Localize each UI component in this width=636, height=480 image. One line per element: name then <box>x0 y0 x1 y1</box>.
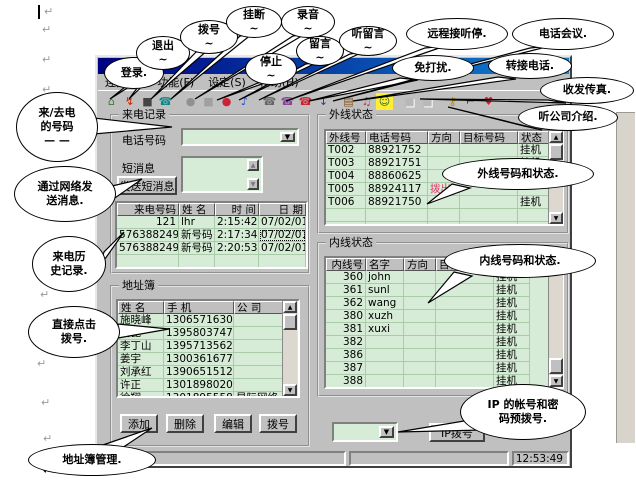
table-cell <box>404 271 436 284</box>
table-cell <box>428 209 460 222</box>
table-cell: T005 <box>326 183 366 196</box>
callout-click-dial: 直接点击 拨号. <box>28 306 120 358</box>
table-cell: 姓 名 <box>179 203 215 216</box>
table-cell: 状态 <box>518 131 550 144</box>
fax-icon[interactable]: ▤ <box>340 93 357 110</box>
table-cell: 挂机 <box>518 144 550 157</box>
table-cell <box>404 336 436 349</box>
table-cell: 挂机 <box>518 196 550 209</box>
table-cell: 388 <box>326 375 366 388</box>
table-cell: 88924117 <box>366 183 428 196</box>
table-row[interactable]: 382挂机 <box>326 336 562 349</box>
message-icon[interactable]: ● <box>218 93 235 110</box>
table-cell <box>366 375 404 388</box>
table-cell: 电话号码 <box>366 131 428 144</box>
table-cell <box>404 362 436 375</box>
scroll-up-icon[interactable]: ▲ <box>549 131 563 143</box>
statusbar-clock: 12:53:49 <box>512 451 569 466</box>
table-cell <box>460 222 518 226</box>
table-cell <box>326 222 366 226</box>
table-cell: 挂机 <box>494 336 530 349</box>
callout-remote-answer: 远程接听停. <box>406 18 508 50</box>
table-cell: 时 间 <box>215 203 259 216</box>
table-cell: 高昆 <box>118 327 164 340</box>
menu-settings[interactable]: 设定(S) <box>201 74 253 90</box>
table-row <box>117 255 306 268</box>
table-cell: 2:20:53 <box>215 242 259 255</box>
callout-fax: 收发传真. <box>540 77 634 104</box>
listen-message-icon[interactable]: ♪ <box>236 93 253 110</box>
table-cell: 方向 <box>428 131 460 144</box>
table-row[interactable]: T00688921750挂机 <box>326 196 562 209</box>
callout-record: 录音 ~ <box>281 6 335 38</box>
scroll-up-icon[interactable]: ▲ <box>283 301 297 313</box>
remote-answer-icon[interactable]: ☎ <box>261 93 278 110</box>
paragraph-mark: ↵ <box>44 6 53 17</box>
dial-button[interactable]: 拨号 <box>259 414 297 433</box>
table-cell: 5763882491 <box>117 242 179 255</box>
table-cell <box>215 255 259 268</box>
sms-scroll-up-icon[interactable]: ▲ <box>247 159 259 171</box>
table-cell: 许正 <box>118 379 164 392</box>
callout-network-message: 通过网络发 送消息. <box>14 166 116 222</box>
stop-icon[interactable]: ■ <box>200 93 217 110</box>
table-cell: 360 <box>326 271 366 284</box>
table-cell: 13958037470 <box>164 327 234 340</box>
table-cell: 13018955581 <box>164 392 234 398</box>
table-row[interactable]: 刘承红13906515125 <box>118 366 298 379</box>
address-book-group-title: 地址簿 <box>119 279 158 292</box>
phone-combo-dropdown-icon[interactable]: ▼ <box>280 132 295 142</box>
scrollbar-thumb[interactable] <box>283 314 297 330</box>
send-sms-button[interactable]: 发送短消息 <box>117 176 177 195</box>
address-book-scrollbar[interactable]: ▲ ▼ <box>282 301 297 396</box>
table-cell: lhr <box>179 216 215 229</box>
company-intro-icon[interactable]: ☺ <box>376 93 393 110</box>
scrollbar-thumb[interactable] <box>549 358 563 374</box>
table-cell <box>366 209 428 222</box>
table-cell <box>518 209 550 222</box>
clock-text: 12:53:49 <box>516 453 563 465</box>
table-cell <box>234 379 284 392</box>
table-cell: 来电号码 <box>117 203 179 216</box>
callout-hangup: 挂断 ~ <box>226 6 282 38</box>
table-cell <box>518 222 550 226</box>
table-cell <box>326 209 366 222</box>
table-cell: 13957135620 <box>164 340 234 353</box>
table-cell: 13003616776 <box>164 353 234 366</box>
callout-message: 留言 ~ <box>296 36 344 66</box>
table-cell: 挂机 <box>494 297 530 310</box>
table-cell: 挂机 <box>494 310 530 323</box>
ip-combo-dropdown-icon[interactable]: ▼ <box>379 426 394 438</box>
table-cell <box>259 255 306 268</box>
table-cell: 施晓峰 <box>118 314 164 327</box>
login-icon[interactable]: ⌂ <box>103 93 120 110</box>
callout-stop: 停止 ~ <box>245 53 297 85</box>
table-cell <box>404 310 436 323</box>
table-cell: 07/02/01 <box>259 229 306 242</box>
table-cell <box>436 297 494 310</box>
table-row[interactable]: 徐翔13018955581星际网络 <box>118 392 298 398</box>
text-cursor <box>38 5 40 19</box>
table-cell: 88921750 <box>366 196 428 209</box>
address-book-table: 姓 名手 机公 司施晓峰13065716309高昆13958037470李丁山1… <box>116 299 300 398</box>
table-header-row: 姓 名手 机公 司 <box>118 301 298 314</box>
table-row[interactable]: 5763882491新号码2:17:3407/02/01 <box>117 229 306 242</box>
table-cell: 381 <box>326 323 366 336</box>
table-cell: 07/02/01 <box>259 216 306 229</box>
paragraph-mark: ↵ <box>42 54 51 65</box>
voice-speaker-icon[interactable]: ♫ <box>358 93 375 110</box>
table-row[interactable]: 361sunl挂机 <box>326 284 562 297</box>
table-cell <box>366 222 428 226</box>
table-cell <box>436 284 494 297</box>
paragraph-mark: ↵ <box>42 24 51 35</box>
table-cell <box>404 297 436 310</box>
table-cell <box>404 349 436 362</box>
callout-transfer: 转接电话. <box>488 53 572 79</box>
table-cell: 2:15:42 <box>215 216 259 229</box>
table-cell: 361 <box>326 284 366 297</box>
table-cell: 方向 <box>404 258 436 271</box>
hangup-icon[interactable]: ☎ <box>157 93 174 110</box>
sms-textbox[interactable]: ▲ ▼ <box>181 156 263 193</box>
table-cell <box>436 310 494 323</box>
table-row <box>326 222 562 226</box>
table-cell: sunl <box>366 284 404 297</box>
table-cell <box>366 336 404 349</box>
callout-addressbook-manage: 地址簿管理. <box>28 444 156 476</box>
tool-icon[interactable]: ⌐ <box>462 93 479 110</box>
edit-button[interactable]: 编辑 <box>214 414 252 433</box>
call-history-table: 来电号码姓 名时 间日 期121lhr2:15:4207/02/01576388… <box>115 201 308 269</box>
table-row[interactable]: 386挂机 <box>326 349 562 362</box>
dial-icon[interactable]: ■ <box>139 93 156 110</box>
screenshot-page: ↵ ↵ ↵ ↵ ↵ ↵ ↵ ↵ 连接(C) 功能(F) 设定(S) 帮助(H) … <box>0 0 636 480</box>
table-cell: T002 <box>326 144 366 157</box>
callout-internal-status: 内线号码和状态. <box>444 244 596 278</box>
table-cell: 李丁山 <box>118 340 164 353</box>
record-icon[interactable]: ● <box>182 93 199 110</box>
table-cell: xuzh <box>366 310 404 323</box>
table-cell: 日 期 <box>259 203 306 216</box>
table-cell <box>436 375 494 388</box>
table-row[interactable]: 高昆13958037470 <box>118 327 298 340</box>
table-cell: T006 <box>326 196 366 209</box>
table-cell: 2:17:34 <box>215 229 259 242</box>
table-row[interactable]: 5763882491新号码2:20:5307/02/01 <box>117 242 306 255</box>
table-cell: 手 机 <box>164 301 234 314</box>
table-row[interactable]: 362wang挂机 <box>326 297 562 310</box>
statusbar-panel-2 <box>349 451 509 466</box>
table-header-row: 来电号码姓 名时 间日 期 <box>117 203 306 216</box>
table-cell: 362 <box>326 297 366 310</box>
add-button[interactable]: 添加 <box>120 414 158 433</box>
table-cell <box>428 222 460 226</box>
table-cell: 刘承红 <box>118 366 164 379</box>
menu-bar: 连接(C) 功能(F) 设定(S) 帮助(H) <box>98 74 569 90</box>
table-row[interactable]: 380xuzh挂机 <box>326 310 562 323</box>
table-cell <box>436 349 494 362</box>
callout-ip-dial: IP 的帐号和密 码预拨号. <box>460 384 586 440</box>
table-cell <box>436 323 494 336</box>
phone-number-value <box>183 136 185 148</box>
table-cell: 名字 <box>366 258 404 271</box>
key-icon[interactable]: ⚷ <box>444 93 461 110</box>
table-cell: 内线号 <box>326 258 366 271</box>
table-cell <box>428 144 460 157</box>
address-book-group: 地址簿 姓 名手 机公 司施晓峰13065716309高昆13958037470… <box>110 285 310 447</box>
callout-conference: 电话会议. <box>512 18 614 50</box>
ip-account-combobox[interactable]: ▼ <box>332 422 398 442</box>
table-cell: 380 <box>326 310 366 323</box>
table-cell <box>326 388 366 389</box>
heart-icon[interactable]: ♥ <box>480 93 497 110</box>
table-cell: 88921751 <box>366 157 428 170</box>
callout-do-not-disturb: 免打扰. <box>392 55 474 81</box>
disabled-icon-1: ■ <box>401 93 418 110</box>
call-record-group: 来电记录 电话号码 ▼ 短消息 ▲ ▼ 发送短消息 来电号码姓 名时 间日 期1… <box>110 114 310 274</box>
table-cell <box>404 284 436 297</box>
internal-status-scrollbar[interactable]: ▲ ▼ <box>548 258 563 387</box>
conference-icon[interactable]: ☎ <box>297 93 314 110</box>
table-row[interactable]: 121lhr2:15:4207/02/01 <box>117 216 306 229</box>
sms-label: 短消息 <box>122 160 155 176</box>
table-cell <box>234 314 284 327</box>
scroll-down-icon[interactable]: ▼ <box>549 212 563 224</box>
table-cell: 13906515125 <box>164 366 234 379</box>
table-cell <box>460 196 518 209</box>
table-cell: 公 司 <box>234 301 284 314</box>
table-cell: wang <box>366 297 404 310</box>
table-cell: 88860625 <box>366 170 428 183</box>
table-row[interactable]: 施晓峰13065716309 <box>118 314 298 327</box>
call-record-group-title: 来电记录 <box>119 108 169 121</box>
table-cell: 徐翔 <box>118 392 164 398</box>
table-cell: 挂机 <box>494 323 530 336</box>
paragraph-mark: ↵ <box>37 358 46 369</box>
table-cell <box>366 349 404 362</box>
table-cell <box>366 362 404 375</box>
table-cell: 13018980204 <box>164 379 234 392</box>
table-cell <box>436 336 494 349</box>
table-cell <box>404 375 436 388</box>
table-row[interactable]: 李丁山13957135620 <box>118 340 298 353</box>
background-scrollbar-strip <box>616 112 635 443</box>
table-row[interactable]: 姜宇13003616776 <box>118 353 298 366</box>
logout-icon[interactable]: ↯ <box>121 93 138 110</box>
scroll-down-icon[interactable]: ▼ <box>283 384 297 396</box>
table-cell <box>179 255 215 268</box>
internal-status-group-title: 内线状态 <box>326 236 376 249</box>
phone-number-combobox[interactable]: ▼ <box>181 128 299 146</box>
table-cell <box>366 388 404 389</box>
table-cell: T003 <box>326 157 366 170</box>
table-cell <box>460 209 518 222</box>
table-cell: 星际网络 <box>234 392 284 398</box>
paragraph-mark: ↵ <box>41 397 50 408</box>
table-cell: 07/02/01 <box>259 242 306 255</box>
table-cell <box>428 196 460 209</box>
callout-inout-number: 来/去电 的号码 — — <box>16 92 98 162</box>
table-cell <box>234 366 284 379</box>
paragraph-mark: ↵ <box>40 289 49 300</box>
table-cell: 外线号 <box>326 131 366 144</box>
table-cell: 姜宇 <box>118 353 164 366</box>
table-cell: 挂机 <box>494 362 530 375</box>
table-cell <box>234 353 284 366</box>
callout-call-history: 来电历 史记录. <box>32 236 106 292</box>
disabled-icon-2: ■ <box>419 93 436 110</box>
table-cell: john <box>366 271 404 284</box>
table-cell: 目标号码 <box>460 131 518 144</box>
table-cell: 13065716309 <box>164 314 234 327</box>
table-cell: 新号码 <box>179 229 215 242</box>
table-row[interactable]: 381xuxi挂机 <box>326 323 562 336</box>
table-cell: 姓 名 <box>118 301 164 314</box>
table-header-row: 外线号电话号码方向目标号码状态 <box>326 131 562 144</box>
table-cell: 5763882491 <box>117 229 179 242</box>
table-cell: T004 <box>326 170 366 183</box>
table-cell <box>234 340 284 353</box>
dnd-icon[interactable]: ☎ <box>279 93 296 110</box>
callout-company-intro: 听公司介绍. <box>518 104 618 131</box>
table-row <box>326 209 562 222</box>
table-cell: 382 <box>326 336 366 349</box>
table-row[interactable]: 387挂机 <box>326 362 562 375</box>
table-cell <box>460 144 518 157</box>
table-cell <box>404 323 436 336</box>
table-cell: 121 <box>117 216 179 229</box>
sms-scroll-down-icon[interactable]: ▼ <box>247 178 259 190</box>
scroll-down-icon[interactable]: ▼ <box>549 375 563 387</box>
callout-listen-message: 听留言 ~ <box>339 26 397 56</box>
table-cell <box>404 388 436 389</box>
external-status-group-title: 外线状态 <box>326 108 376 121</box>
table-cell: 386 <box>326 349 366 362</box>
paragraph-mark: ↵ <box>43 433 52 444</box>
scrollbar-thumb[interactable] <box>549 144 563 160</box>
table-cell: 拨出 <box>428 183 460 196</box>
table-cell: xuxi <box>366 323 404 336</box>
delete-button[interactable]: 删除 <box>166 414 204 433</box>
table-cell <box>436 362 494 375</box>
table-cell: 387 <box>326 362 366 375</box>
table-cell: 挂机 <box>494 284 530 297</box>
callout-external-status: 外线号码和状态. <box>442 158 594 190</box>
phone-number-label: 电话号码 <box>122 132 166 148</box>
table-row[interactable]: 许正13018980204 <box>118 379 298 392</box>
table-cell: 新号码 <box>179 242 215 255</box>
table-cell <box>117 255 179 268</box>
table-cell: 88921752 <box>366 144 428 157</box>
table-cell: 挂机 <box>494 349 530 362</box>
transfer-icon[interactable]: ↓ <box>315 93 332 110</box>
table-row[interactable]: T00288921752挂机 <box>326 144 562 157</box>
table-cell <box>234 327 284 340</box>
